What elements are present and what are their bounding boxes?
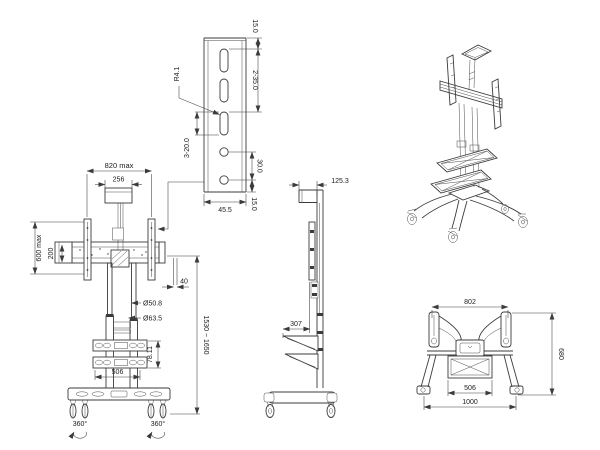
rotation-arrow-right bbox=[152, 432, 165, 438]
dim-slot-length: 3-20.0 bbox=[184, 138, 191, 158]
dim-bracket-depth: 125.3 bbox=[331, 178, 349, 185]
dim-max-width: 820 max bbox=[105, 161, 134, 170]
shelf-bars bbox=[93, 340, 147, 368]
rotation-arrow-left bbox=[74, 432, 87, 438]
dim-edge-to-slot: 15.0 bbox=[251, 19, 258, 33]
dim-base-width: 1000 bbox=[462, 399, 478, 406]
dim-base-depth: 680 bbox=[557, 348, 564, 360]
front-view: 820 max 256 40 bbox=[30, 161, 209, 438]
dim-hole-pitch: 30.0 bbox=[256, 159, 263, 173]
dim-shelf-depth: 307 bbox=[290, 321, 302, 328]
isometric-view bbox=[407, 45, 528, 243]
dim-hole-to-edge: 15.0 bbox=[250, 197, 257, 211]
dim-slot-radius: R4.1 bbox=[174, 67, 181, 82]
dim-shelf-width-top: 506 bbox=[464, 385, 476, 392]
dim-end-offset: 40 bbox=[180, 279, 188, 286]
caster-swivel-right-label: 360° bbox=[151, 420, 166, 428]
dim-slot-pitch: 2-35.0 bbox=[251, 70, 258, 90]
top-view: 802 506 1000 680 bbox=[417, 299, 564, 410]
detail-view: 15.0 2-35.0 30.0 15.0 45.5 3-20.0 R4.1 bbox=[158, 19, 263, 229]
drawing-svg: 15.0 2-35.0 30.0 15.0 45.5 3-20.0 R4.1 8… bbox=[0, 0, 600, 450]
dim-max-height: 600 max bbox=[36, 234, 43, 261]
dim-top-plate-width: 256 bbox=[113, 177, 125, 184]
side-view: 125.3 307 bbox=[264, 178, 349, 418]
dim-inner-tube-dia: Ø50.8 bbox=[143, 301, 162, 308]
dim-bracket-width: 802 bbox=[464, 299, 476, 306]
dim-shelf-width-front: 506 bbox=[112, 369, 124, 376]
dim-outer-tube-dia: Ø63.5 bbox=[143, 316, 162, 323]
dim-plate-width: 45.5 bbox=[218, 207, 232, 214]
iso-casters bbox=[407, 205, 528, 243]
dim-height-range: 1530 ~ 1650 bbox=[202, 315, 209, 354]
dim-shelf-gap: 78.11 bbox=[147, 346, 154, 363]
caster-swivel-left-label: 360° bbox=[73, 420, 88, 428]
technical-drawing: 15.0 2-35.0 30.0 15.0 45.5 3-20.0 R4.1 8… bbox=[0, 0, 600, 450]
front-casters bbox=[70, 400, 166, 418]
dim-rail-height: 200 bbox=[48, 248, 55, 260]
